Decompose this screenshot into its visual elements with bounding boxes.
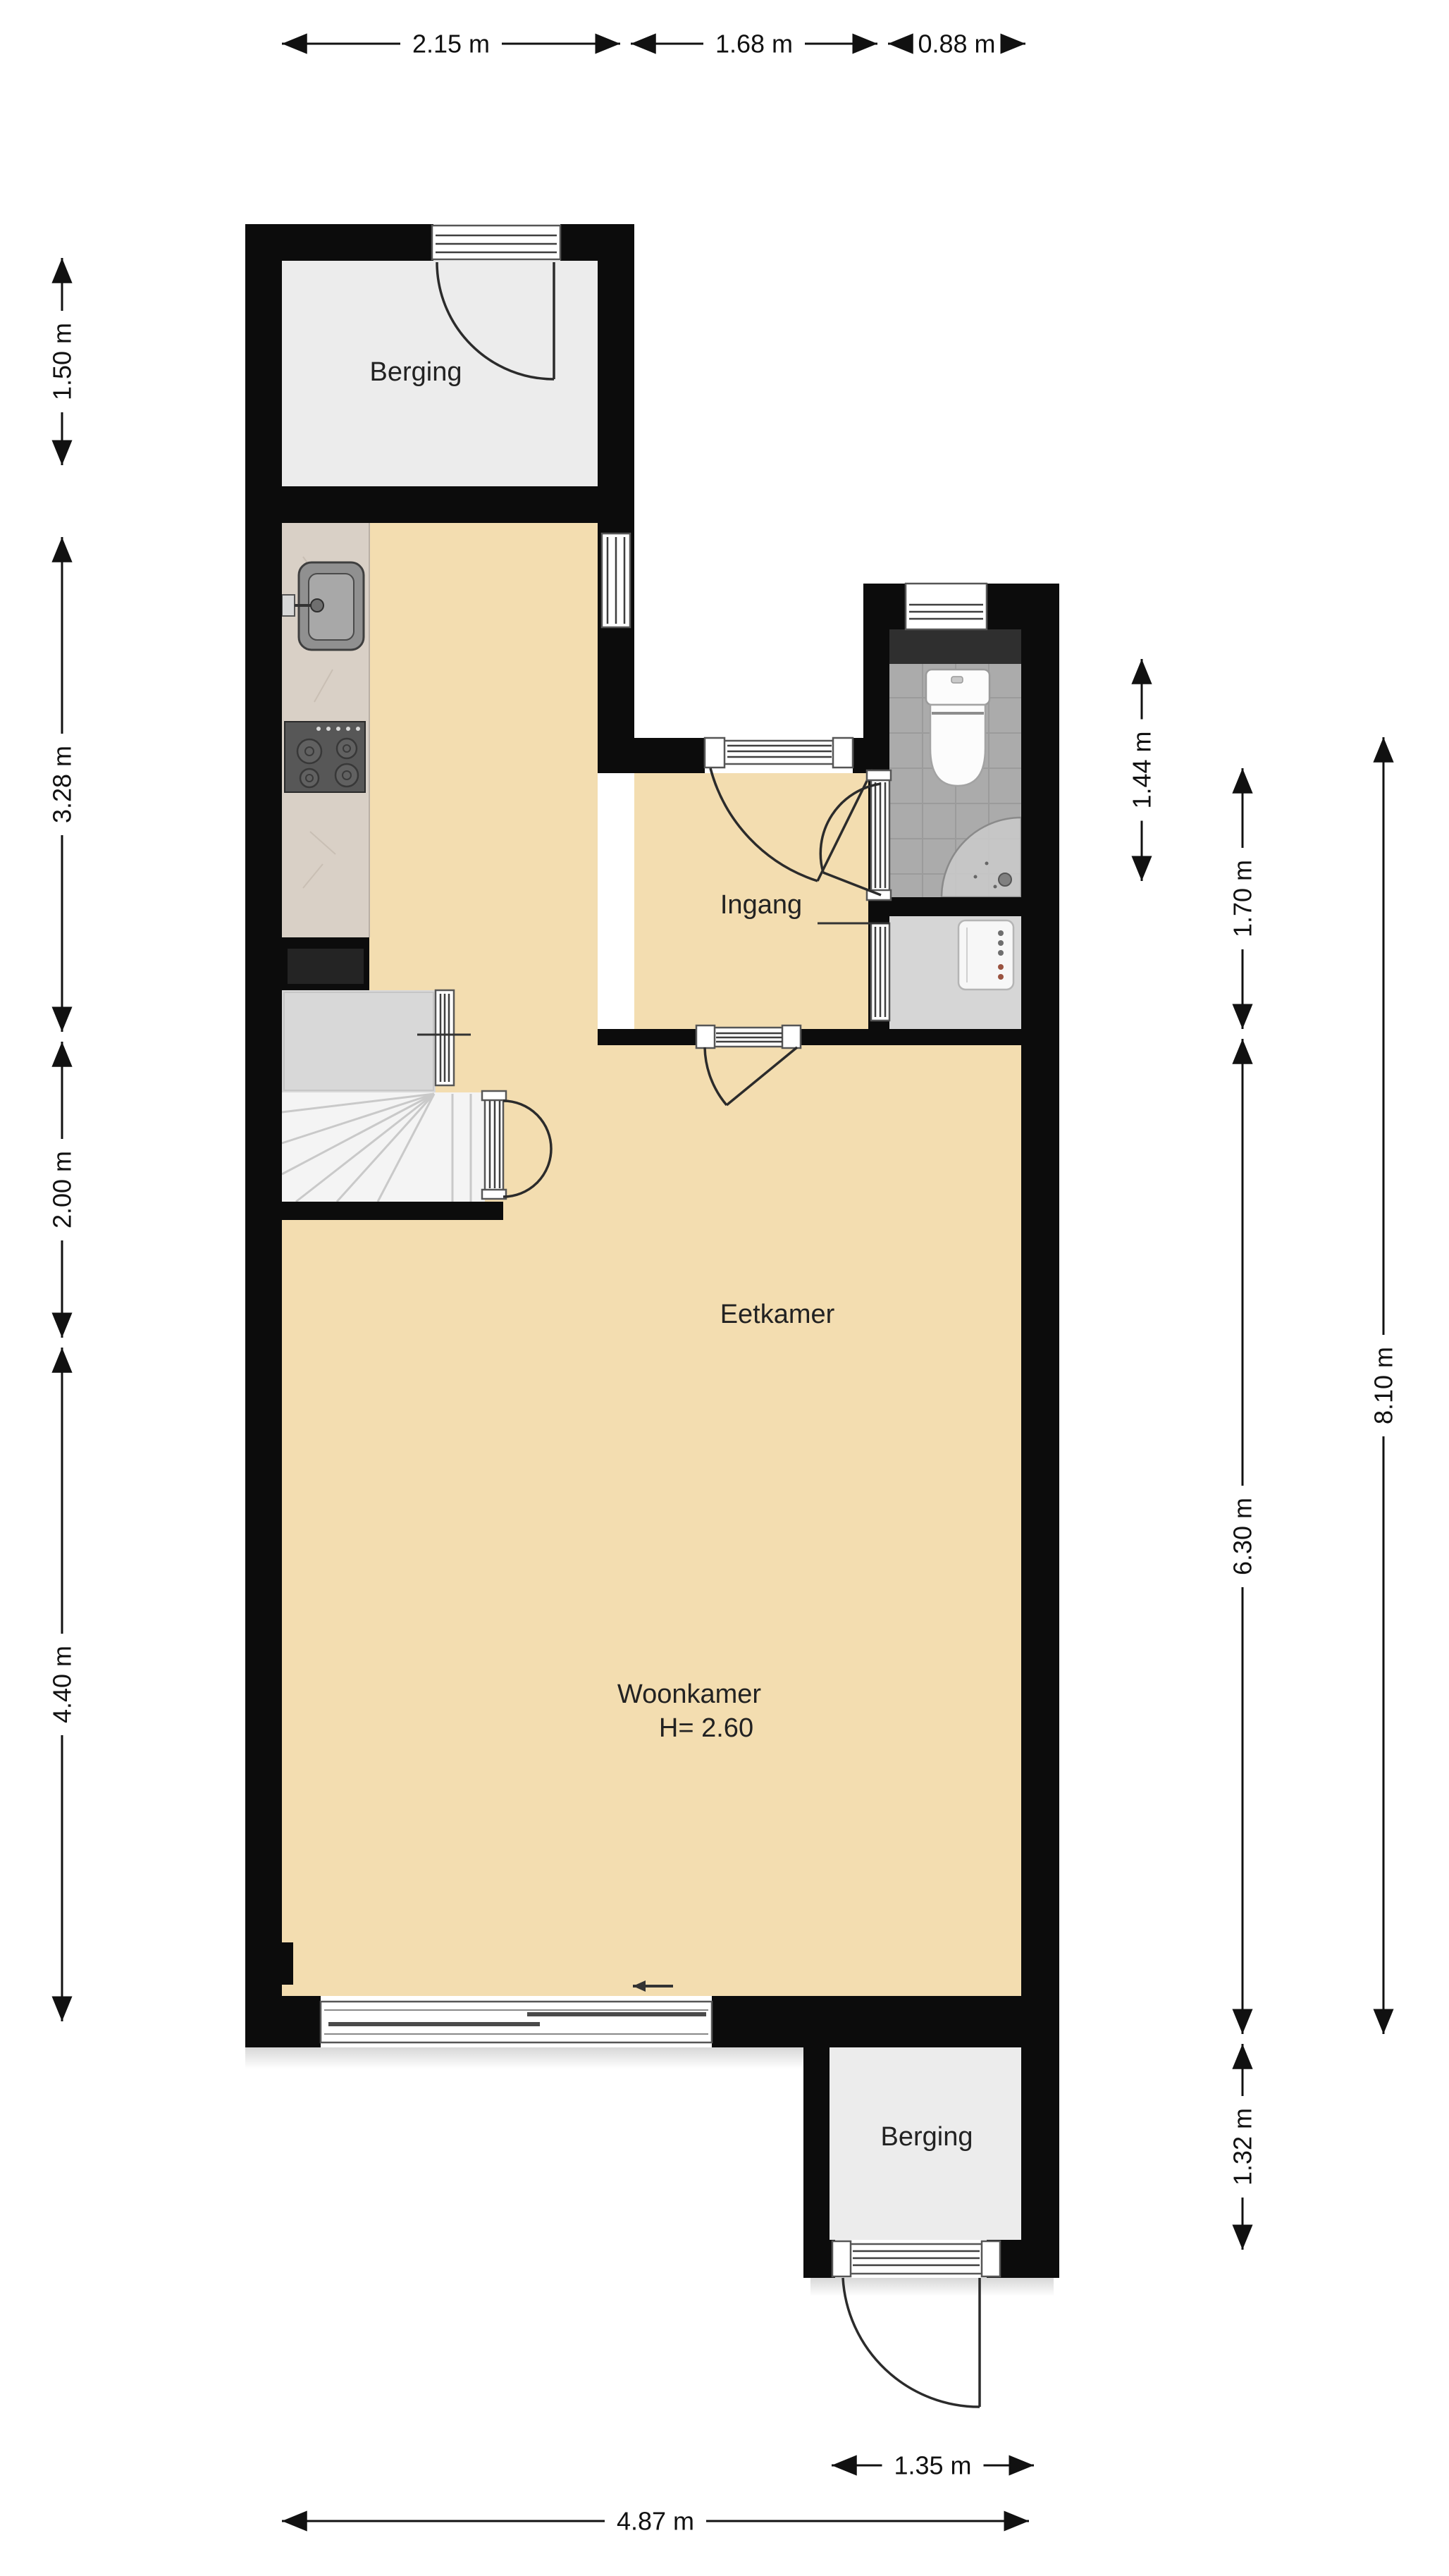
- kitchen-window: [602, 534, 630, 627]
- berging-bottom-door: [832, 2241, 1000, 2407]
- dim-left-berging: 1.50 m: [48, 258, 77, 465]
- dimension-label: 1.50 m: [48, 323, 77, 400]
- burner: [297, 739, 321, 763]
- dimension-label: 2.00 m: [48, 1151, 77, 1228]
- ingang-label: Ingang: [720, 890, 802, 920]
- dimension-label: 4.40 m: [48, 1646, 77, 1723]
- dim-bottom-total: 4.87 m: [282, 2507, 1029, 2536]
- dimension-label: 1.35 m: [894, 2451, 971, 2480]
- floors: [282, 261, 1021, 2240]
- dim-top-width-left: 2.15 m: [282, 30, 620, 58]
- shower-drain-icon: [999, 873, 1011, 886]
- toilet-bowl: [930, 705, 985, 786]
- boiler-unit: [958, 920, 1013, 990]
- annex-shadow: [810, 2278, 1054, 2296]
- dimension-label: 6.30 m: [1228, 1498, 1257, 1575]
- toilet-tank: [926, 670, 989, 705]
- dim-left-woonkamer: 4.40 m: [48, 1348, 77, 2021]
- dim-top-width-right: 0.88 m: [888, 30, 1025, 58]
- woonkamer-label: Woonkamer: [617, 1680, 762, 1709]
- dim-right-total: 8.10 m: [1369, 737, 1398, 2034]
- eetkamer-label: Eetkamer: [720, 1300, 835, 1329]
- dimension-label: 1.32 m: [1228, 2108, 1257, 2186]
- toilet: [926, 670, 989, 786]
- burner: [335, 764, 358, 787]
- drain-icon: [311, 599, 323, 612]
- dimension-label: 1.70 m: [1228, 860, 1257, 937]
- dimension-label: 1.68 m: [715, 30, 793, 58]
- dim-right-bathroom: 1.44 m: [1128, 659, 1157, 881]
- dimension-label: 4.87 m: [617, 2507, 694, 2536]
- dimension-label: 1.44 m: [1128, 731, 1157, 808]
- berging-bottom-label: Berging: [881, 2122, 973, 2152]
- flush-button: [951, 677, 963, 683]
- burner: [300, 769, 319, 787]
- dimension-label: 2.15 m: [412, 30, 490, 58]
- dim-left-stairs: 2.00 m: [48, 1042, 77, 1338]
- under-counter-appliance: [288, 949, 364, 984]
- dim-right-berging: 1.32 m: [1228, 2044, 1257, 2250]
- dimension-label: 8.10 m: [1369, 1347, 1398, 1424]
- dimension-label: 0.88 m: [918, 30, 995, 58]
- burner: [337, 739, 357, 758]
- building-shadow: [245, 2047, 803, 2069]
- faucet-base: [282, 595, 295, 616]
- dimension-label: 3.28 m: [48, 746, 77, 823]
- dim-right-ingang: 1.70 m: [1228, 768, 1257, 1029]
- bathroom-window: [906, 584, 987, 629]
- floorplan-page: Berging Ingang Eetkamer Woonkamer H= 2.6…: [0, 0, 1449, 2576]
- floorplan-drawing: Berging Ingang Eetkamer Woonkamer H= 2.6…: [0, 0, 1449, 2576]
- dim-right-eetkamer: 6.30 m: [1228, 1039, 1257, 2034]
- bathroom-shelf: [889, 629, 1021, 664]
- dim-bottom-berging: 1.35 m: [832, 2451, 1034, 2480]
- dim-left-kitchen: 3.28 m: [48, 537, 77, 1032]
- dim-top-width-mid: 1.68 m: [631, 30, 877, 58]
- berging-top-label: Berging: [370, 357, 462, 387]
- closet-floor: [282, 990, 436, 1092]
- woonkamer-height-note: H= 2.60: [659, 1713, 753, 1743]
- cooktop: [285, 722, 365, 792]
